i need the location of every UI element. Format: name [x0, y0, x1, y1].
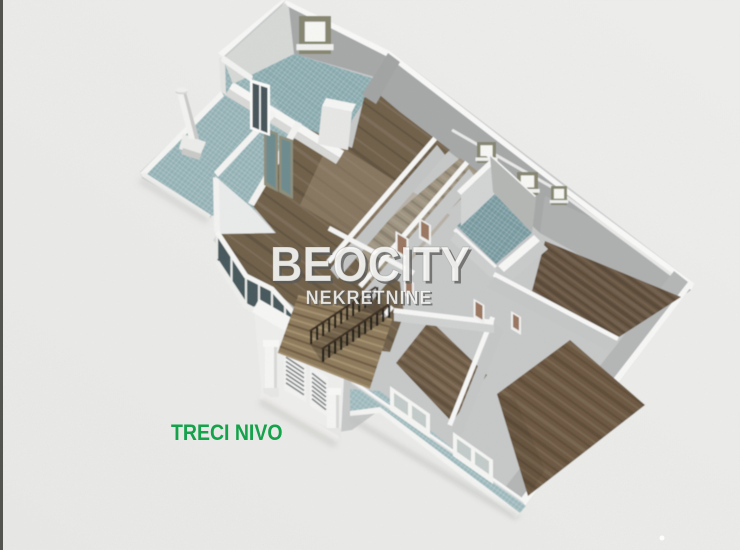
- svg-text:TRECI NIVO: TRECI NIVO: [171, 421, 283, 445]
- svg-text:NEKRETNINE: NEKRETNINE: [306, 287, 433, 309]
- svg-text:BEOCITY: BEOCITY: [270, 236, 470, 291]
